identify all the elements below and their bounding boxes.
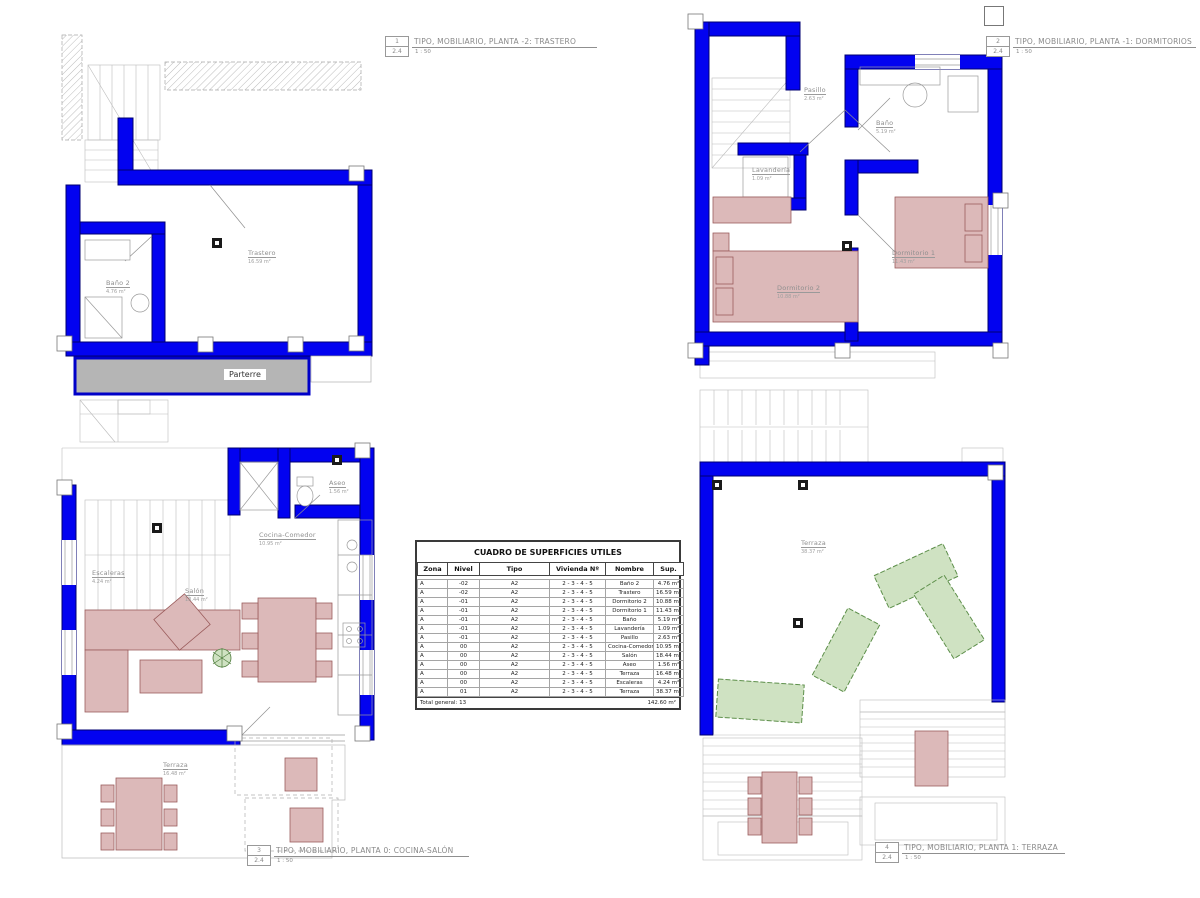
plan-scale: 1 : 50 [902,855,1065,861]
room-area: 38.37 m² [801,550,826,556]
room-area: 1.56 m² [329,490,349,496]
table-cell: 11.43 m² [654,607,684,616]
room-name: Baño 2 [106,280,130,288]
table-cell: Terraza [606,688,654,697]
table-cell: -01 [448,598,480,607]
equipment-marker [152,455,342,533]
sheet-reference-box: 1 2.4 [385,36,409,57]
table-cell: A2 [480,607,550,616]
equipment-marker [842,241,852,251]
table-cell: A [418,589,448,598]
plan-title: TIPO, MOBILIARIO, PLANTA -1: DORMITORIOS [1013,36,1196,48]
stairs [85,500,230,610]
room-label-dormitorio2: Dormitorio 2 10.88 m² [777,276,820,301]
table-cell: 4.24 m² [654,679,684,688]
bedroom-furniture [713,197,988,322]
table-cell: 1.56 m² [654,661,684,670]
table-cell: 4.76 m² [654,580,684,589]
room-area: 1.09 m² [752,177,790,183]
table-row: A00A22 - 3 - 4 - 5Terraza16.48 m² [418,670,684,679]
table-cell: A2 [480,688,550,697]
table-cell: 2 - 3 - 4 - 5 [550,589,606,598]
col-header-vivienda: Vivienda Nº [550,563,606,576]
sheet-number: 2.4 [876,853,898,862]
parterre-bed [75,358,309,394]
plan-number: 2 [987,37,1009,47]
table-cell: 2 - 3 - 4 - 5 [550,616,606,625]
plant [213,648,231,668]
room-area: 4.76 m² [106,290,130,296]
table-cell: Lavandería [606,625,654,634]
plan-number: 3 [248,846,270,856]
table-cell: 10.88 m² [654,598,684,607]
table-cell: 2 - 3 - 4 - 5 [550,580,606,589]
room-area: 10.88 m² [777,295,820,301]
table-row: A01A22 - 3 - 4 - 5Terraza38.37 m² [418,688,684,697]
table-cell: 00 [448,643,480,652]
plan-number: 1 [386,37,408,47]
floor-plan-planta-1 [675,385,1015,870]
table-cell: A [418,670,448,679]
table-cell: -01 [448,616,480,625]
room-label-terraza-p0: Terraza 16.48 m² [163,753,188,778]
table-header-row: Zona Nivel Tipo Vivienda Nº Nombre Sup. [418,563,684,576]
surfaces-table-body: A-02A22 - 3 - 4 - 5Baño 24.76 m²A-02A22 … [418,576,684,697]
col-header-zona: Zona [418,563,448,576]
roof-overhang [62,400,228,485]
room-name: Aseo [329,480,346,488]
sheet-reference-box: 4 2.4 [875,842,899,863]
floor-plan-planta-minus1 [675,5,1015,395]
title-block-1: 1 2.4 TIPO, MOBILIARIO, PLANTA -2: TRAST… [385,36,597,57]
room-name: Dormitorio 2 [777,285,820,293]
table-row: A00A22 - 3 - 4 - 5Aseo1.56 m² [418,661,684,670]
room-label-bano2: Baño 2 4.76 m² [106,271,130,296]
room-name: Dormitorio 1 [892,250,935,258]
room-name: Terraza [801,540,826,548]
title-block-4: 4 2.4 TIPO, MOBILIARIO, PLANTA 1: TERRAZ… [875,842,1065,863]
plan-title: TIPO, MOBILIARIO, PLANTA 0: COCINA-SALÓN [274,845,469,857]
table-cell: A2 [480,679,550,688]
plan-title: TIPO, MOBILIARIO, PLANTA 1: TERRAZA [902,842,1065,854]
sheet-reference-box: 2 2.4 [986,36,1010,57]
retaining-walls-hatched [62,35,361,140]
room-label-aseo: Aseo 1.56 m² [329,471,349,496]
room-area: 10.95 m² [259,542,316,548]
table-cell: A2 [480,652,550,661]
room-label-lavanderia: Lavandería 1.09 m² [752,158,790,183]
table-cell: A [418,643,448,652]
sun-loungers [716,544,985,723]
col-header-tipo: Tipo [480,563,550,576]
table-cell: 2 - 3 - 4 - 5 [550,607,606,616]
table-cell: A2 [480,643,550,652]
floor-plan-planta-minus2 [55,25,405,400]
table-cell: A2 [480,580,550,589]
table-cell: 2 - 3 - 4 - 5 [550,670,606,679]
sheet-reference-box: 3 2.4 [247,845,271,866]
table-cell: 1.09 m² [654,625,684,634]
table-cell: A [418,607,448,616]
table-cell: A [418,688,448,697]
table-row: A-01A22 - 3 - 4 - 5Baño5.19 m² [418,616,684,625]
table-row: A-01A22 - 3 - 4 - 5Lavandería1.09 m² [418,625,684,634]
surfaces-table: CUADRO DE SUPERFICIES UTILES Zona Nivel … [415,540,681,710]
table-cell: 2 - 3 - 4 - 5 [550,625,606,634]
table-cell: A2 [480,670,550,679]
room-label-bano: Baño 5.19 m² [876,111,896,136]
plan-scale: 1 : 50 [1013,49,1196,55]
room-name: Pasillo [804,87,826,95]
table-cell: 2.63 m² [654,634,684,643]
plan-number: 4 [876,843,898,853]
room-label-trastero: Trastero 16.59 m² [248,241,276,266]
total-label: Total general: 13 [420,700,466,706]
table-cell: Pasillo [606,634,654,643]
table-cell: 00 [448,661,480,670]
table-cell: Cocina-Comedor [606,643,654,652]
table-row: A-01A22 - 3 - 4 - 5Dormitorio 111.43 m² [418,607,684,616]
table-cell: A [418,652,448,661]
table-cell: 16.48 m² [654,670,684,679]
table-cell: A2 [480,598,550,607]
table-cell: 2 - 3 - 4 - 5 [550,598,606,607]
table-cell: 38.37 m² [654,688,684,697]
table-cell: 2 - 3 - 4 - 5 [550,634,606,643]
drawing-sheet: Trastero 16.59 m² Baño 2 4.76 m² Parterr… [0,0,1200,898]
room-name: Cocina-Comedor [259,532,316,540]
table-row: A-02A22 - 3 - 4 - 5Baño 24.76 m² [418,580,684,589]
room-label-pasillo: Pasillo 2.63 m² [804,78,826,103]
sheet-number: 2.4 [248,856,270,865]
title-block-2: 2 2.4 TIPO, MOBILIARIO, PLANTA -1: DORMI… [986,36,1196,57]
plan-scale: 1 : 50 [274,858,469,864]
table-cell: 00 [448,670,480,679]
room-label-terraza-p1: Terraza 38.37 m² [801,531,826,556]
table-cell: Terraza [606,670,654,679]
parterre-label: Parterre [224,369,266,380]
table-cell: 16.59 m² [654,589,684,598]
room-area: 11.43 m² [892,260,935,266]
total-value: 142.60 m² [647,700,676,706]
table-cell: Baño 2 [606,580,654,589]
title-block-3: 3 2.4 TIPO, MOBILIARIO, PLANTA 0: COCINA… [247,845,469,866]
table-cell: A [418,661,448,670]
table-cell: 2 - 3 - 4 - 5 [550,688,606,697]
table-cell: A [418,598,448,607]
room-name: Lavandería [752,167,790,175]
shower [240,462,278,510]
table-cell: A2 [480,661,550,670]
table-cell: Dormitorio 1 [606,607,654,616]
wall-connectors [988,465,1003,480]
table-cell: A [418,616,448,625]
equipment-marker [712,480,808,628]
table-row: A00A22 - 3 - 4 - 5Salón18.44 m² [418,652,684,661]
table-cell: A [418,679,448,688]
table-cell: Trastero [606,589,654,598]
col-header-nombre: Nombre [606,563,654,576]
table-cell: A2 [480,616,550,625]
table-cell: Dormitorio 2 [606,598,654,607]
table-cell: -02 [448,589,480,598]
table-cell: -01 [448,607,480,616]
table-cell: 5.19 m² [654,616,684,625]
room-label-salon: Salón 18.44 m² [185,579,208,604]
table-cell: A [418,625,448,634]
living-furniture [85,594,332,712]
table-cell: Aseo [606,661,654,670]
surfaces-table-total: Total general: 13 142.60 m² [417,697,679,708]
table-cell: 00 [448,679,480,688]
table-row: A-01A22 - 3 - 4 - 5Dormitorio 210.88 m² [418,598,684,607]
table-cell: -02 [448,580,480,589]
room-area: 4.24 m² [92,580,125,586]
floor-plan-planta-0 [55,395,405,870]
sheet-number: 2.4 [987,47,1009,56]
room-label-dormitorio1: Dormitorio 1 11.43 m² [892,241,935,266]
table-cell: 00 [448,652,480,661]
table-cell: 2 - 3 - 4 - 5 [550,652,606,661]
room-label-escaleras: Escaleras 4.24 m² [92,561,125,586]
table-cell: 2 - 3 - 4 - 5 [550,661,606,670]
table-cell: Salón [606,652,654,661]
table-cell: 01 [448,688,480,697]
room-area: 16.59 m² [248,260,276,266]
col-header-sup: Sup. [654,563,684,576]
keyplan-marker [984,6,1004,26]
surfaces-table-title: CUADRO DE SUPERFICIES UTILES [417,542,679,562]
terrace-furniture [101,758,323,850]
room-area: 16.48 m² [163,772,188,778]
room-name: Baño [876,120,893,128]
table-cell: A2 [480,625,550,634]
terrace-outline-below [700,352,935,378]
plan-title: TIPO, MOBILIARIO, PLANTA -2: TRASTERO [412,36,597,48]
table-cell: A2 [480,634,550,643]
table-cell: A [418,580,448,589]
col-header-nivel: Nivel [448,563,480,576]
table-cell: A [418,634,448,643]
table-cell: Escaleras [606,679,654,688]
toilet [297,477,313,506]
room-area: 5.19 m² [876,130,896,136]
table-cell: -01 [448,634,480,643]
table-row: A00A22 - 3 - 4 - 5Escaleras4.24 m² [418,679,684,688]
table-row: A-01A22 - 3 - 4 - 5Pasillo2.63 m² [418,634,684,643]
exterior-step [311,356,371,382]
table-cell: A2 [480,589,550,598]
plan-scale: 1 : 50 [412,49,597,55]
table-row: A00A22 - 3 - 4 - 5Cocina-Comedor10.95 m² [418,643,684,652]
table-row: A-02A22 - 3 - 4 - 5Trastero16.59 m² [418,589,684,598]
table-cell: -01 [448,625,480,634]
room-name: Trastero [248,250,276,258]
table-cell: 10.95 m² [654,643,684,652]
room-area: 18.44 m² [185,598,208,604]
room-name: Terraza [163,762,188,770]
room-name: Escaleras [92,570,125,578]
table-cell: 2 - 3 - 4 - 5 [550,679,606,688]
room-label-cocina-comedor: Cocina-Comedor 10.95 m² [259,523,316,548]
sheet-number: 2.4 [386,47,408,56]
equipment-marker [212,238,222,248]
table-cell: 2 - 3 - 4 - 5 [550,643,606,652]
table-cell: Baño [606,616,654,625]
room-name: Salón [185,588,204,596]
room-area: 2.63 m² [804,97,826,103]
table-cell: 18.44 m² [654,652,684,661]
